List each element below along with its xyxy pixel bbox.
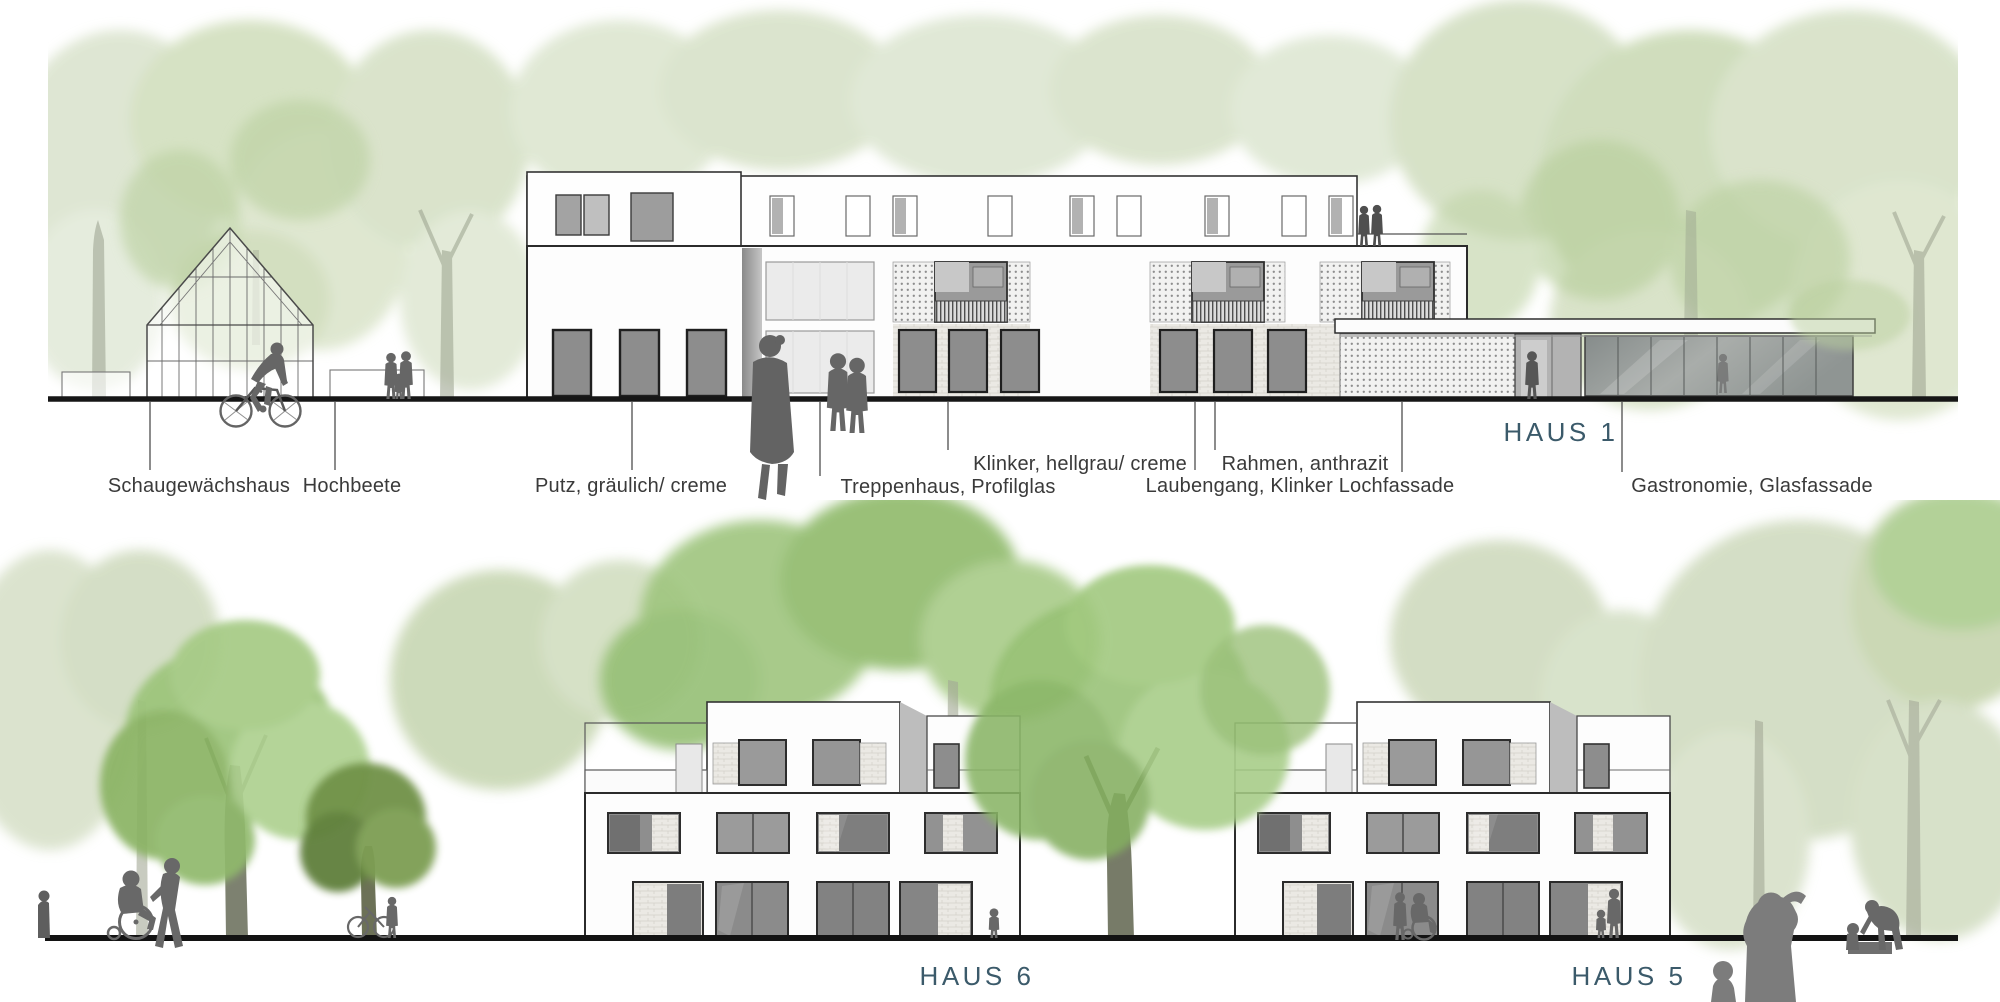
perforated-entrance-wall — [1340, 334, 1515, 398]
foreground-adult-silhouette — [1743, 892, 1806, 1002]
couple-with-child-silhouette — [384, 351, 412, 399]
label-hochbeete: Hochbeete — [303, 476, 402, 497]
partial-figure-left-edge — [38, 891, 50, 939]
left-margin — [0, 0, 48, 500]
label-klinker: Klinker, hellgrau/ creme — [973, 454, 1187, 475]
label-laubengang: Laubengang, Klinker Lochfassade — [1146, 476, 1455, 497]
label-rahmen: Rahmen, anthrazit — [1222, 454, 1389, 475]
label-haus-1: HAUS 1 — [1504, 417, 1619, 448]
right-margin — [1958, 0, 2000, 500]
leader-lines-upper — [150, 402, 1622, 476]
laubengang-balcony-modules — [893, 262, 1450, 322]
label-gastronomie: Gastronomie, Glasfassade — [1631, 476, 1873, 497]
ground-floor-windows-left — [553, 330, 726, 396]
lower-elevation-drawing — [0, 500, 2000, 1002]
label-putz: Putz, gräulich/ creme — [535, 476, 727, 497]
upper-elevation-drawing — [0, 0, 2000, 500]
roof-terrace-couple-silhouette — [1358, 205, 1383, 246]
label-treppenhaus: Treppenhaus, Profilglas — [840, 477, 1055, 498]
label-haus-6: HAUS 6 — [920, 961, 1035, 992]
foreground-child-silhouette — [1711, 961, 1736, 1002]
label-haus-5: HAUS 5 — [1572, 961, 1687, 992]
haus1-building — [527, 172, 1467, 398]
foreground-leaves — [1790, 280, 1910, 350]
label-schaugewaechshaus: Schaugewächshaus — [108, 476, 290, 497]
architectural-elevation-sheet: Schaugewächshaus Hochbeete Putz, gräulic… — [0, 0, 2000, 1002]
